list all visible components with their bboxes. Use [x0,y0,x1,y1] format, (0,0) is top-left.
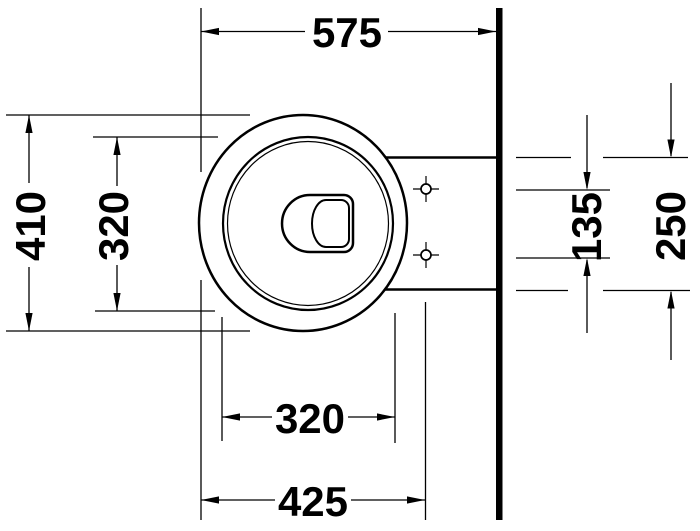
arrowhead [25,313,32,331]
mounting-hole-top [413,176,439,202]
arrowhead [377,413,395,420]
wall-line [496,8,503,520]
toilet-plan-drawing: 575 410 320 135 [0,0,700,531]
arrowhead [222,413,240,420]
dimension-bottom-inner: 320 [222,313,395,443]
mounting-hole-bottom [413,242,439,268]
dim-label-left-inner: 320 [90,191,137,261]
arrowhead [583,172,590,190]
arrowhead [25,115,32,133]
dim-label-top: 575 [312,9,382,56]
arrowhead [407,496,425,503]
sump-inner-outline [312,200,349,247]
dim-label-bottom-inner: 320 [275,395,345,442]
arrowhead [201,28,219,35]
arrowhead [667,291,674,309]
arrowhead [113,137,120,155]
arrowhead [667,140,674,158]
technical-drawing-canvas: 575 410 320 135 [0,0,700,531]
dim-label-right-outer: 250 [647,191,694,261]
arrowhead [201,496,219,503]
arrowhead [478,28,496,35]
dim-label-right-inner: 135 [563,192,610,262]
dim-label-bottom-outer: 425 [278,478,348,525]
dim-label-left-outer: 410 [7,191,54,261]
arrowhead [113,293,120,311]
dimension-hole-spacing: 135 [516,115,610,333]
